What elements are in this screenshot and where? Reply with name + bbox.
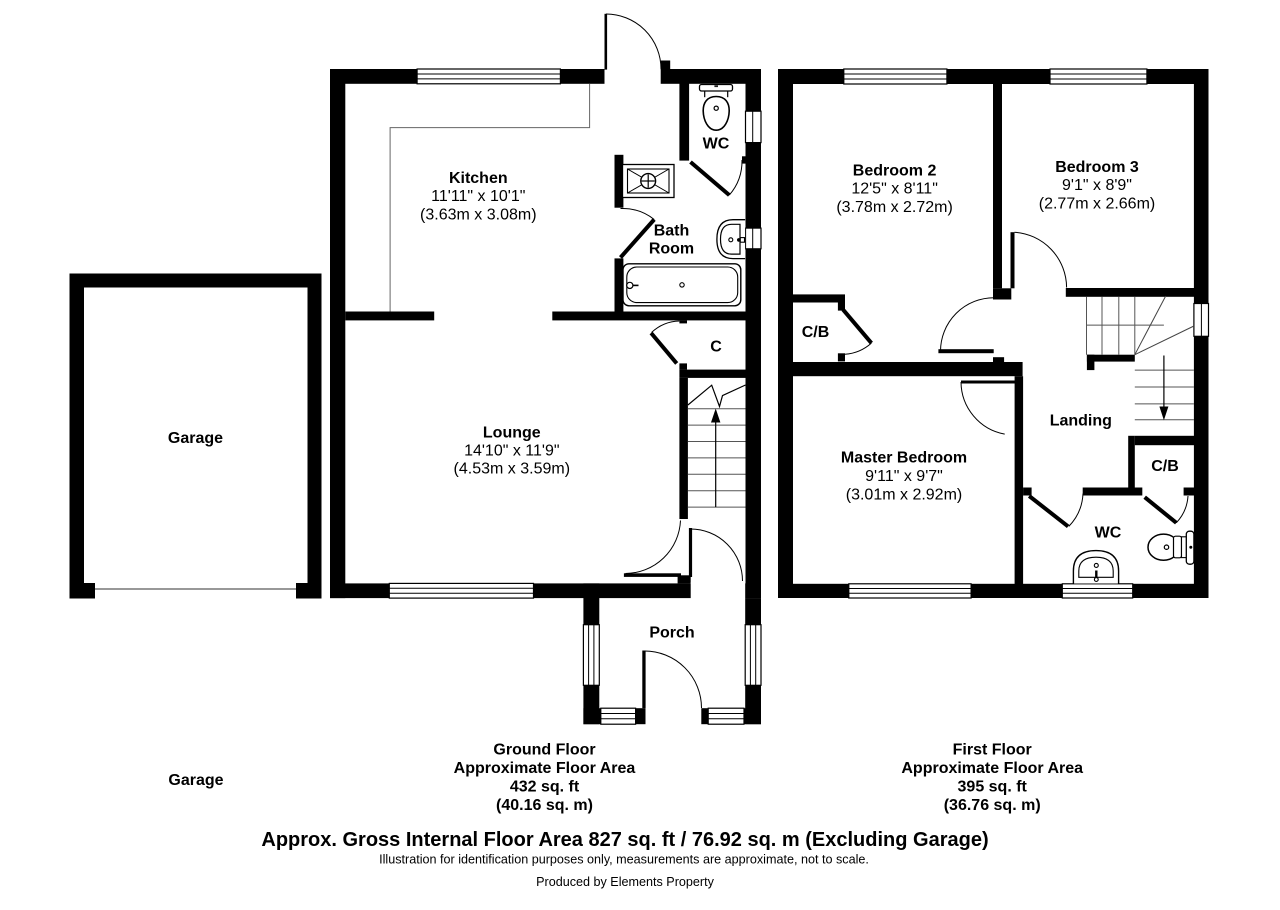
svg-text:Master Bedroom: Master Bedroom [841,450,967,467]
svg-text:Landing: Landing [1050,413,1112,430]
svg-text:Kitchen: Kitchen [449,170,508,187]
svg-text:395 sq. ft: 395 sq. ft [958,779,1028,796]
svg-text:Bedroom 3: Bedroom 3 [1055,159,1139,176]
svg-text:Room: Room [649,241,694,258]
svg-text:(4.53m x 3.59m): (4.53m x 3.59m) [454,461,570,478]
svg-text:First Floor: First Floor [953,742,1032,759]
svg-text:C: C [710,339,722,356]
svg-text:WC: WC [1095,525,1122,542]
svg-text:Approximate Floor Area: Approximate Floor Area [454,760,636,777]
svg-text:(3.78m x 2.72m): (3.78m x 2.72m) [836,199,952,216]
svg-text:(40.16 sq. m): (40.16 sq. m) [496,797,593,814]
svg-text:Ground Floor: Ground Floor [493,742,595,759]
svg-text:(3.01m x 2.92m): (3.01m x 2.92m) [846,487,962,504]
svg-text:14'10" x 11'9": 14'10" x 11'9" [464,443,559,460]
svg-text:(36.76 sq. m): (36.76 sq. m) [944,797,1041,814]
svg-text:Lounge: Lounge [483,425,541,442]
svg-text:Illustration for identificatio: Illustration for identification purposes… [379,853,869,867]
svg-text:11'11" x 10'1": 11'11" x 10'1" [431,188,525,205]
svg-text:(3.63m x 3.08m): (3.63m x 3.08m) [420,207,536,224]
svg-text:Garage: Garage [168,772,223,789]
svg-text:9'11" x 9'7": 9'11" x 9'7" [865,468,943,485]
svg-text:WC: WC [703,136,730,153]
svg-text:C/B: C/B [802,324,830,341]
svg-text:C/B: C/B [1151,458,1179,475]
svg-text:Garage: Garage [168,430,223,447]
svg-text:12'5" x 8'11": 12'5" x 8'11" [851,181,938,198]
svg-text:Bedroom 2: Bedroom 2 [853,163,937,180]
svg-text:9'1" x 8'9": 9'1" x 8'9" [1062,177,1132,194]
svg-text:432 sq. ft: 432 sq. ft [510,779,580,796]
svg-text:Porch: Porch [649,624,694,641]
svg-text:Bath: Bath [654,222,690,239]
svg-text:Produced by Elements Property: Produced by Elements Property [536,875,715,889]
svg-text:(2.77m x 2.66m): (2.77m x 2.66m) [1039,196,1155,213]
svg-text:Approx. Gross Internal Floor A: Approx. Gross Internal Floor Area 827 sq… [261,829,988,851]
svg-text:Approximate Floor Area: Approximate Floor Area [901,760,1083,777]
